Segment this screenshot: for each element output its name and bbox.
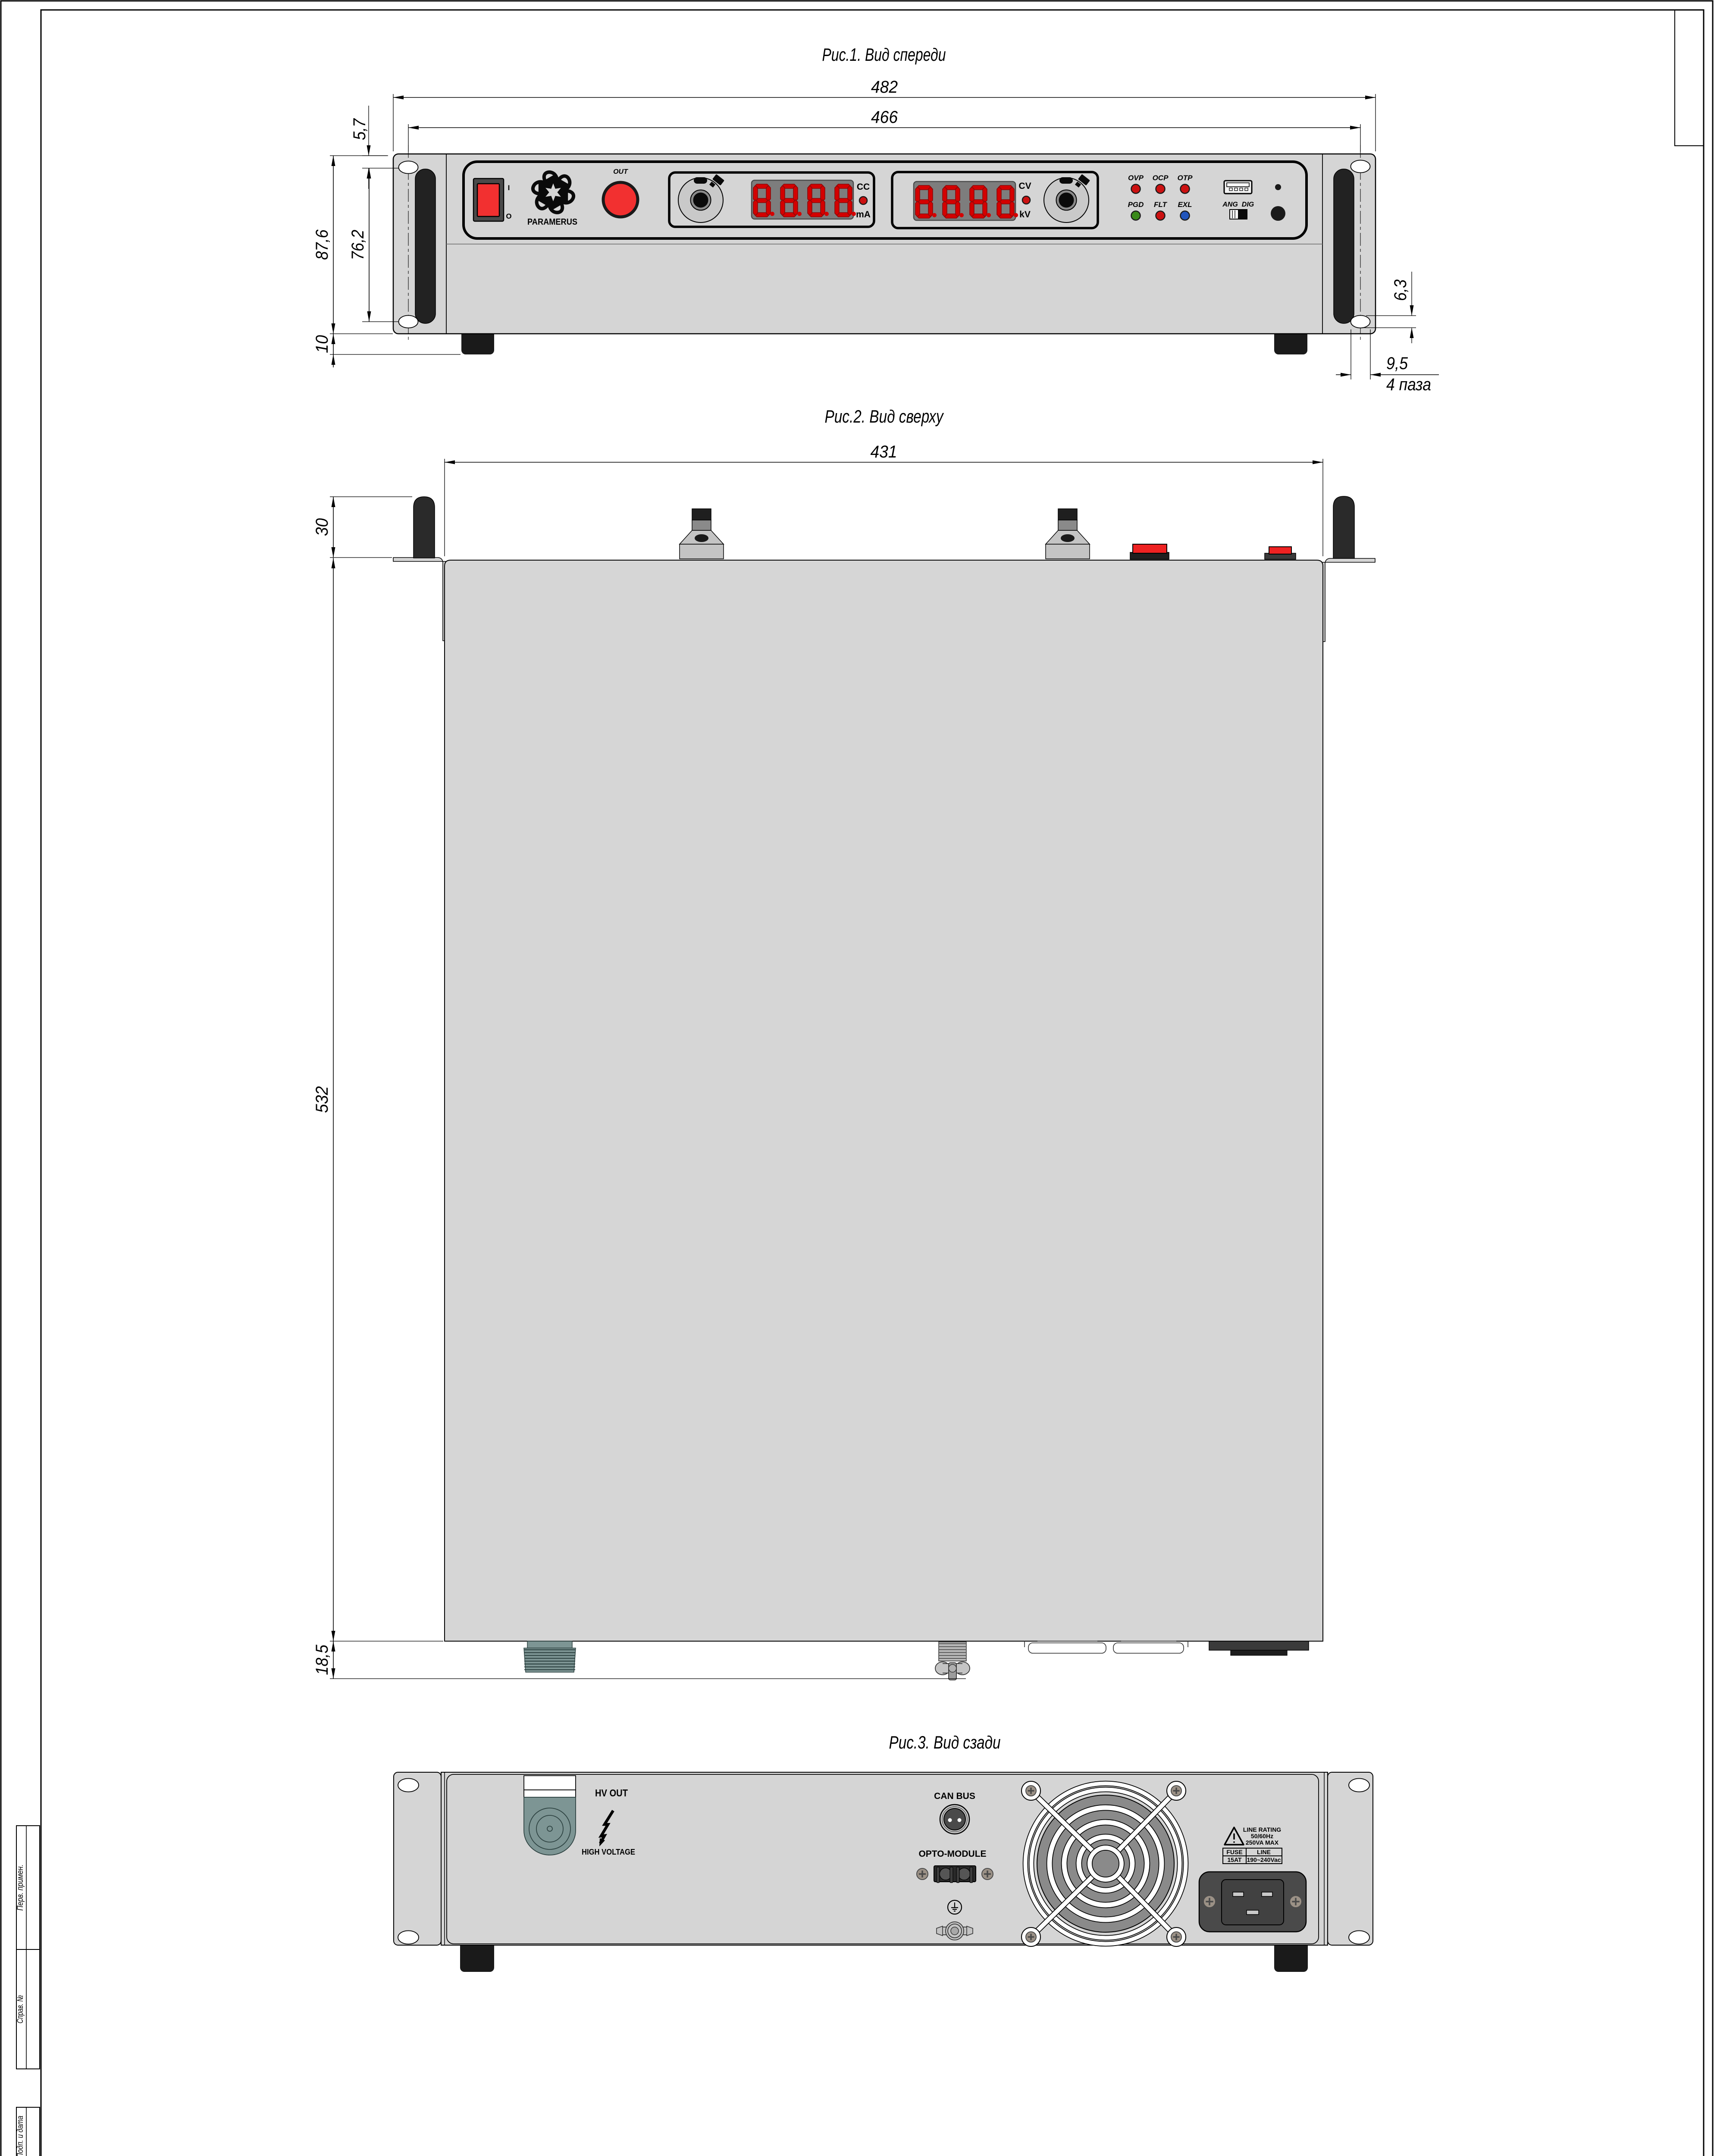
svg-text:Подп. и дата: Подп. и дата xyxy=(16,2116,25,2156)
svg-text:OTP: OTP xyxy=(1178,174,1193,182)
svg-text:87,6: 87,6 xyxy=(313,229,332,260)
svg-text:9,5: 9,5 xyxy=(1386,354,1408,373)
svg-text:OCP: OCP xyxy=(1153,174,1169,182)
svg-text:HIGH VOLTAGE: HIGH VOLTAGE xyxy=(582,1848,635,1856)
svg-text:CC: CC xyxy=(857,182,870,192)
svg-text:482: 482 xyxy=(871,78,898,97)
svg-text:OPTO-MODULE: OPTO-MODULE xyxy=(918,1849,986,1859)
svg-text:15AT: 15AT xyxy=(1227,1856,1242,1863)
svg-text:18,5: 18,5 xyxy=(313,1645,332,1675)
svg-text:OVP: OVP xyxy=(1128,174,1144,182)
svg-text:CAN BUS: CAN BUS xyxy=(934,1791,975,1801)
svg-text:FUSE: FUSE xyxy=(1226,1849,1242,1855)
svg-text:EXL: EXL xyxy=(1178,201,1192,209)
svg-text:kV: kV xyxy=(1019,210,1031,219)
svg-text:mA: mA xyxy=(856,210,871,219)
svg-text:FLT: FLT xyxy=(1154,201,1168,209)
svg-text:Рис.2. Вид сверху: Рис.2. Вид сверху xyxy=(825,406,944,426)
svg-text:532: 532 xyxy=(313,1086,332,1113)
svg-text:6,3: 6,3 xyxy=(1391,279,1410,301)
svg-text:PARAMERUS: PARAMERUS xyxy=(527,217,577,227)
svg-text:10: 10 xyxy=(313,335,332,353)
svg-text:76,2: 76,2 xyxy=(348,230,367,260)
svg-text:OUT: OUT xyxy=(613,168,628,175)
svg-text:466: 466 xyxy=(871,108,898,127)
svg-text:ANG: ANG xyxy=(1222,201,1238,208)
svg-text:LINE: LINE xyxy=(1257,1849,1271,1855)
svg-text:250VA MAX: 250VA MAX xyxy=(1246,1839,1279,1846)
svg-text:LINE RATING: LINE RATING xyxy=(1243,1826,1282,1833)
svg-text:Справ. №: Справ. № xyxy=(16,1995,25,2024)
svg-text:431: 431 xyxy=(870,442,897,461)
svg-text:30: 30 xyxy=(313,518,332,536)
svg-text:DIG: DIG xyxy=(1242,201,1254,208)
svg-text:PGD: PGD xyxy=(1128,201,1144,209)
svg-text:Перв. примен.: Перв. примен. xyxy=(16,1865,25,1911)
svg-text:Рис.1. Вид спереди: Рис.1. Вид спереди xyxy=(822,44,946,65)
svg-text:O: O xyxy=(506,212,511,220)
svg-text:5,7: 5,7 xyxy=(350,118,369,140)
svg-text:Рис.3. Вид сзади: Рис.3. Вид сзади xyxy=(889,1732,1001,1752)
svg-text:4 паза: 4 паза xyxy=(1386,375,1431,394)
svg-text:I: I xyxy=(508,184,510,192)
svg-text:CV: CV xyxy=(1018,181,1031,191)
svg-text:HV OUT: HV OUT xyxy=(595,1787,628,1799)
svg-text:190~240Vac: 190~240Vac xyxy=(1247,1856,1281,1863)
svg-text:50/60Hz: 50/60Hz xyxy=(1251,1833,1273,1839)
